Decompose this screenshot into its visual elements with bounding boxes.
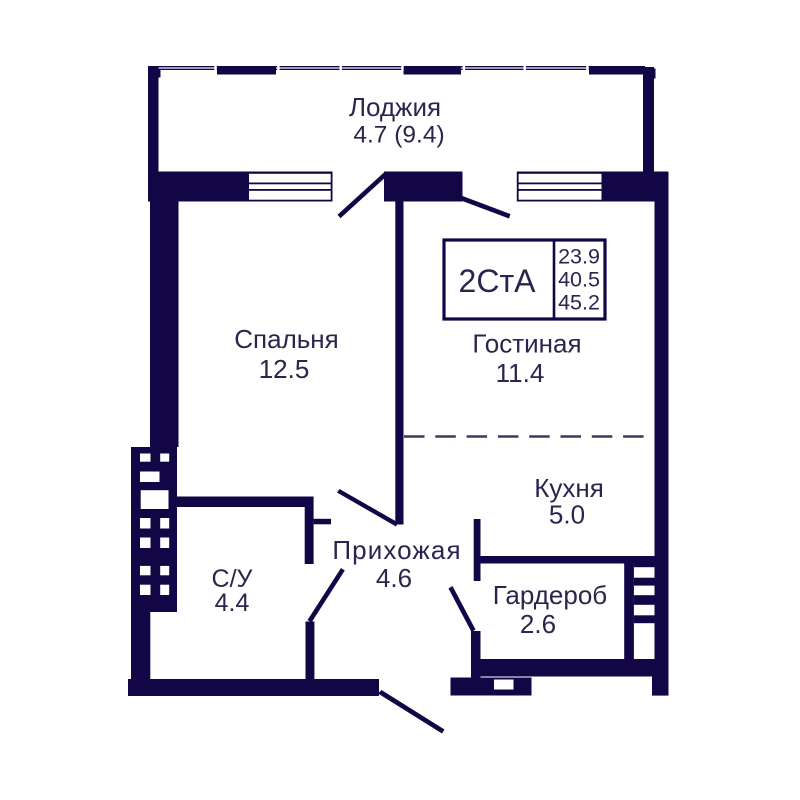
svg-text:11.4: 11.4 xyxy=(496,358,545,388)
svg-text:5.0: 5.0 xyxy=(549,500,585,530)
svg-text:23.9: 23.9 xyxy=(558,245,600,269)
svg-text:45.2: 45.2 xyxy=(558,291,600,315)
svg-text:2.6: 2.6 xyxy=(520,609,556,639)
svg-text:Гостиная: Гостиная xyxy=(472,329,581,359)
svg-text:Прихожая: Прихожая xyxy=(332,535,461,565)
svg-text:4.6: 4.6 xyxy=(376,563,412,593)
svg-text:Гардероб: Гардероб xyxy=(493,580,607,610)
svg-text:4.7 (9.4): 4.7 (9.4) xyxy=(353,122,444,149)
svg-text:4.4: 4.4 xyxy=(215,589,250,617)
svg-text:Спальня: Спальня xyxy=(234,324,338,354)
svg-text:12.5: 12.5 xyxy=(259,354,310,384)
svg-text:Кухня: Кухня xyxy=(534,473,604,503)
svg-text:40.5: 40.5 xyxy=(558,268,600,292)
svg-text:Лоджия: Лоджия xyxy=(349,92,441,122)
svg-text:2СтА: 2СтА xyxy=(459,263,537,299)
